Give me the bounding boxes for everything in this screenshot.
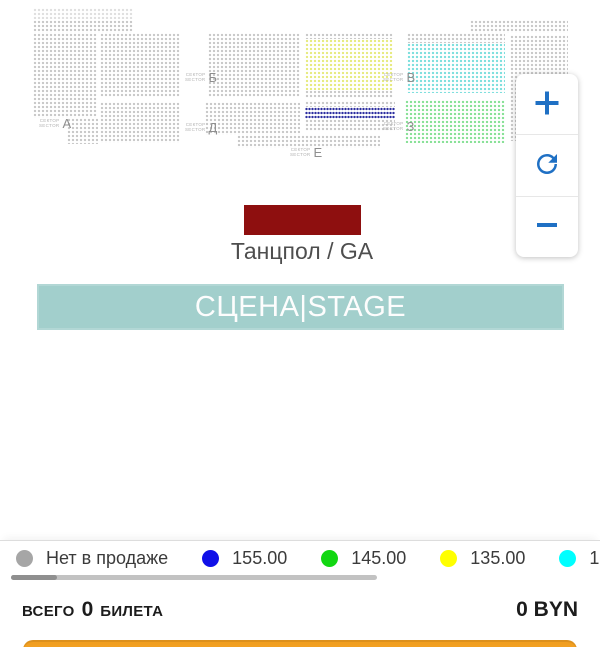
seat-block-sector-a-lower: [67, 118, 98, 144]
seat-block-a-top-light: [33, 8, 133, 19]
ga-zone-label: Танцпол / GA: [202, 238, 402, 265]
legend-item: 155.00: [202, 548, 287, 569]
stage-label: СЦЕНА|STAGE: [195, 291, 406, 324]
seat-block-sector-d-lower: [205, 102, 300, 135]
order-summary: ВСЕГО 0 БИЛЕТА 0 BYN: [0, 582, 600, 638]
price-color-dot: [440, 550, 457, 567]
seat-block-sector-z-gray-lower: [305, 119, 395, 131]
legend-item-label: 145.00: [351, 548, 406, 569]
zoom-out-button[interactable]: [516, 196, 578, 257]
sector-label-Е: СЕКТОРSECTORЕ: [290, 145, 322, 159]
total-unit: БИЛЕТА: [100, 603, 163, 620]
price-color-dot: [321, 550, 338, 567]
sector-letter: В: [406, 71, 415, 84]
seat-block-sector-b-upper: [100, 33, 180, 97]
seat-block-sector-a: [33, 33, 97, 118]
legend-item: Нет в продаже: [16, 548, 168, 569]
rotate-button[interactable]: [516, 134, 578, 195]
legend-item-label: 1: [589, 548, 599, 569]
minus-icon: [533, 211, 561, 242]
sector-word: СЕКТОРSECTOR: [39, 118, 59, 128]
legend-scrollbar-thumb[interactable]: [11, 575, 57, 580]
sector-word: СЕКТОРSECTOR: [383, 121, 403, 131]
total-price: 0 BYN: [516, 598, 578, 622]
seat-block-sector-v-bottom-gray: [305, 90, 393, 98]
legend-item: 1: [559, 548, 599, 569]
legend-scrollbar-track[interactable]: [11, 575, 377, 580]
total-tickets: ВСЕГО 0 БИЛЕТА: [22, 598, 163, 622]
sector-letter: Б: [208, 71, 217, 84]
sector-word: СЕКТОРSECTOR: [185, 72, 205, 82]
sector-word: СЕКТОРSECTOR: [290, 147, 310, 157]
sector-label-Д: СЕКТОРSECTORД: [185, 120, 217, 134]
sector-label-Б: СЕКТОРSECTORБ: [185, 70, 217, 84]
legend-item-label: 135.00: [470, 548, 525, 569]
price-color-dot: [559, 550, 576, 567]
legend-item: 145.00: [321, 548, 406, 569]
ga-zone[interactable]: [244, 205, 361, 235]
total-label: ВСЕГО: [22, 603, 75, 620]
price-color-dot: [16, 550, 33, 567]
sector-label-А: СЕКТОРSECTORА: [39, 116, 71, 130]
legend-item-label: Нет в продаже: [46, 548, 168, 569]
plus-icon: [533, 89, 561, 120]
total-count: 0: [82, 598, 94, 622]
rotate-clockwise-icon: [532, 149, 562, 182]
seat-block-sector-z-green[interactable]: [405, 100, 505, 143]
price-color-dot: [202, 550, 219, 567]
seat-block-sector-z-blue[interactable]: [305, 107, 395, 119]
ticket-seatmap-page: СЕКТОРSECTORАСЕКТОРSECTORБСЕКТОРSECTORДС…: [0, 0, 600, 647]
seat-block-a-top: [33, 20, 133, 33]
seat-block-right-top-strip: [470, 20, 568, 33]
seat-block-sector-zh-top-gray: [407, 33, 505, 43]
seat-block-sector-zh-cyan[interactable]: [407, 43, 505, 93]
sector-letter: Д: [208, 121, 217, 134]
sector-word: СЕКТОРSECTOR: [185, 122, 205, 132]
seat-block-sector-b-lower: [100, 102, 180, 143]
sector-label-З: СЕКТОРSECTORЗ: [383, 119, 414, 133]
sector-word: СЕКТОРSECTOR: [383, 72, 403, 82]
sector-letter: З: [406, 120, 414, 133]
legend-item-label: 155.00: [232, 548, 287, 569]
zoom-in-button[interactable]: [516, 74, 578, 134]
sector-letter: А: [62, 117, 71, 130]
sector-letter: Е: [313, 146, 322, 159]
sector-label-В: СЕКТОРSECTORВ: [383, 70, 415, 84]
checkout-button[interactable]: [23, 640, 577, 647]
map-controls-panel: [516, 74, 578, 257]
seat-map-canvas[interactable]: СЕКТОРSECTORАСЕКТОРSECTORБСЕКТОРSECTORДС…: [0, 0, 600, 540]
seat-block-sector-d-upper: [208, 33, 300, 97]
seat-block-sector-v-yellow[interactable]: [305, 39, 393, 90]
stage-bar: СЦЕНА|STAGE: [37, 284, 564, 330]
legend-item: 135.00: [440, 548, 525, 569]
